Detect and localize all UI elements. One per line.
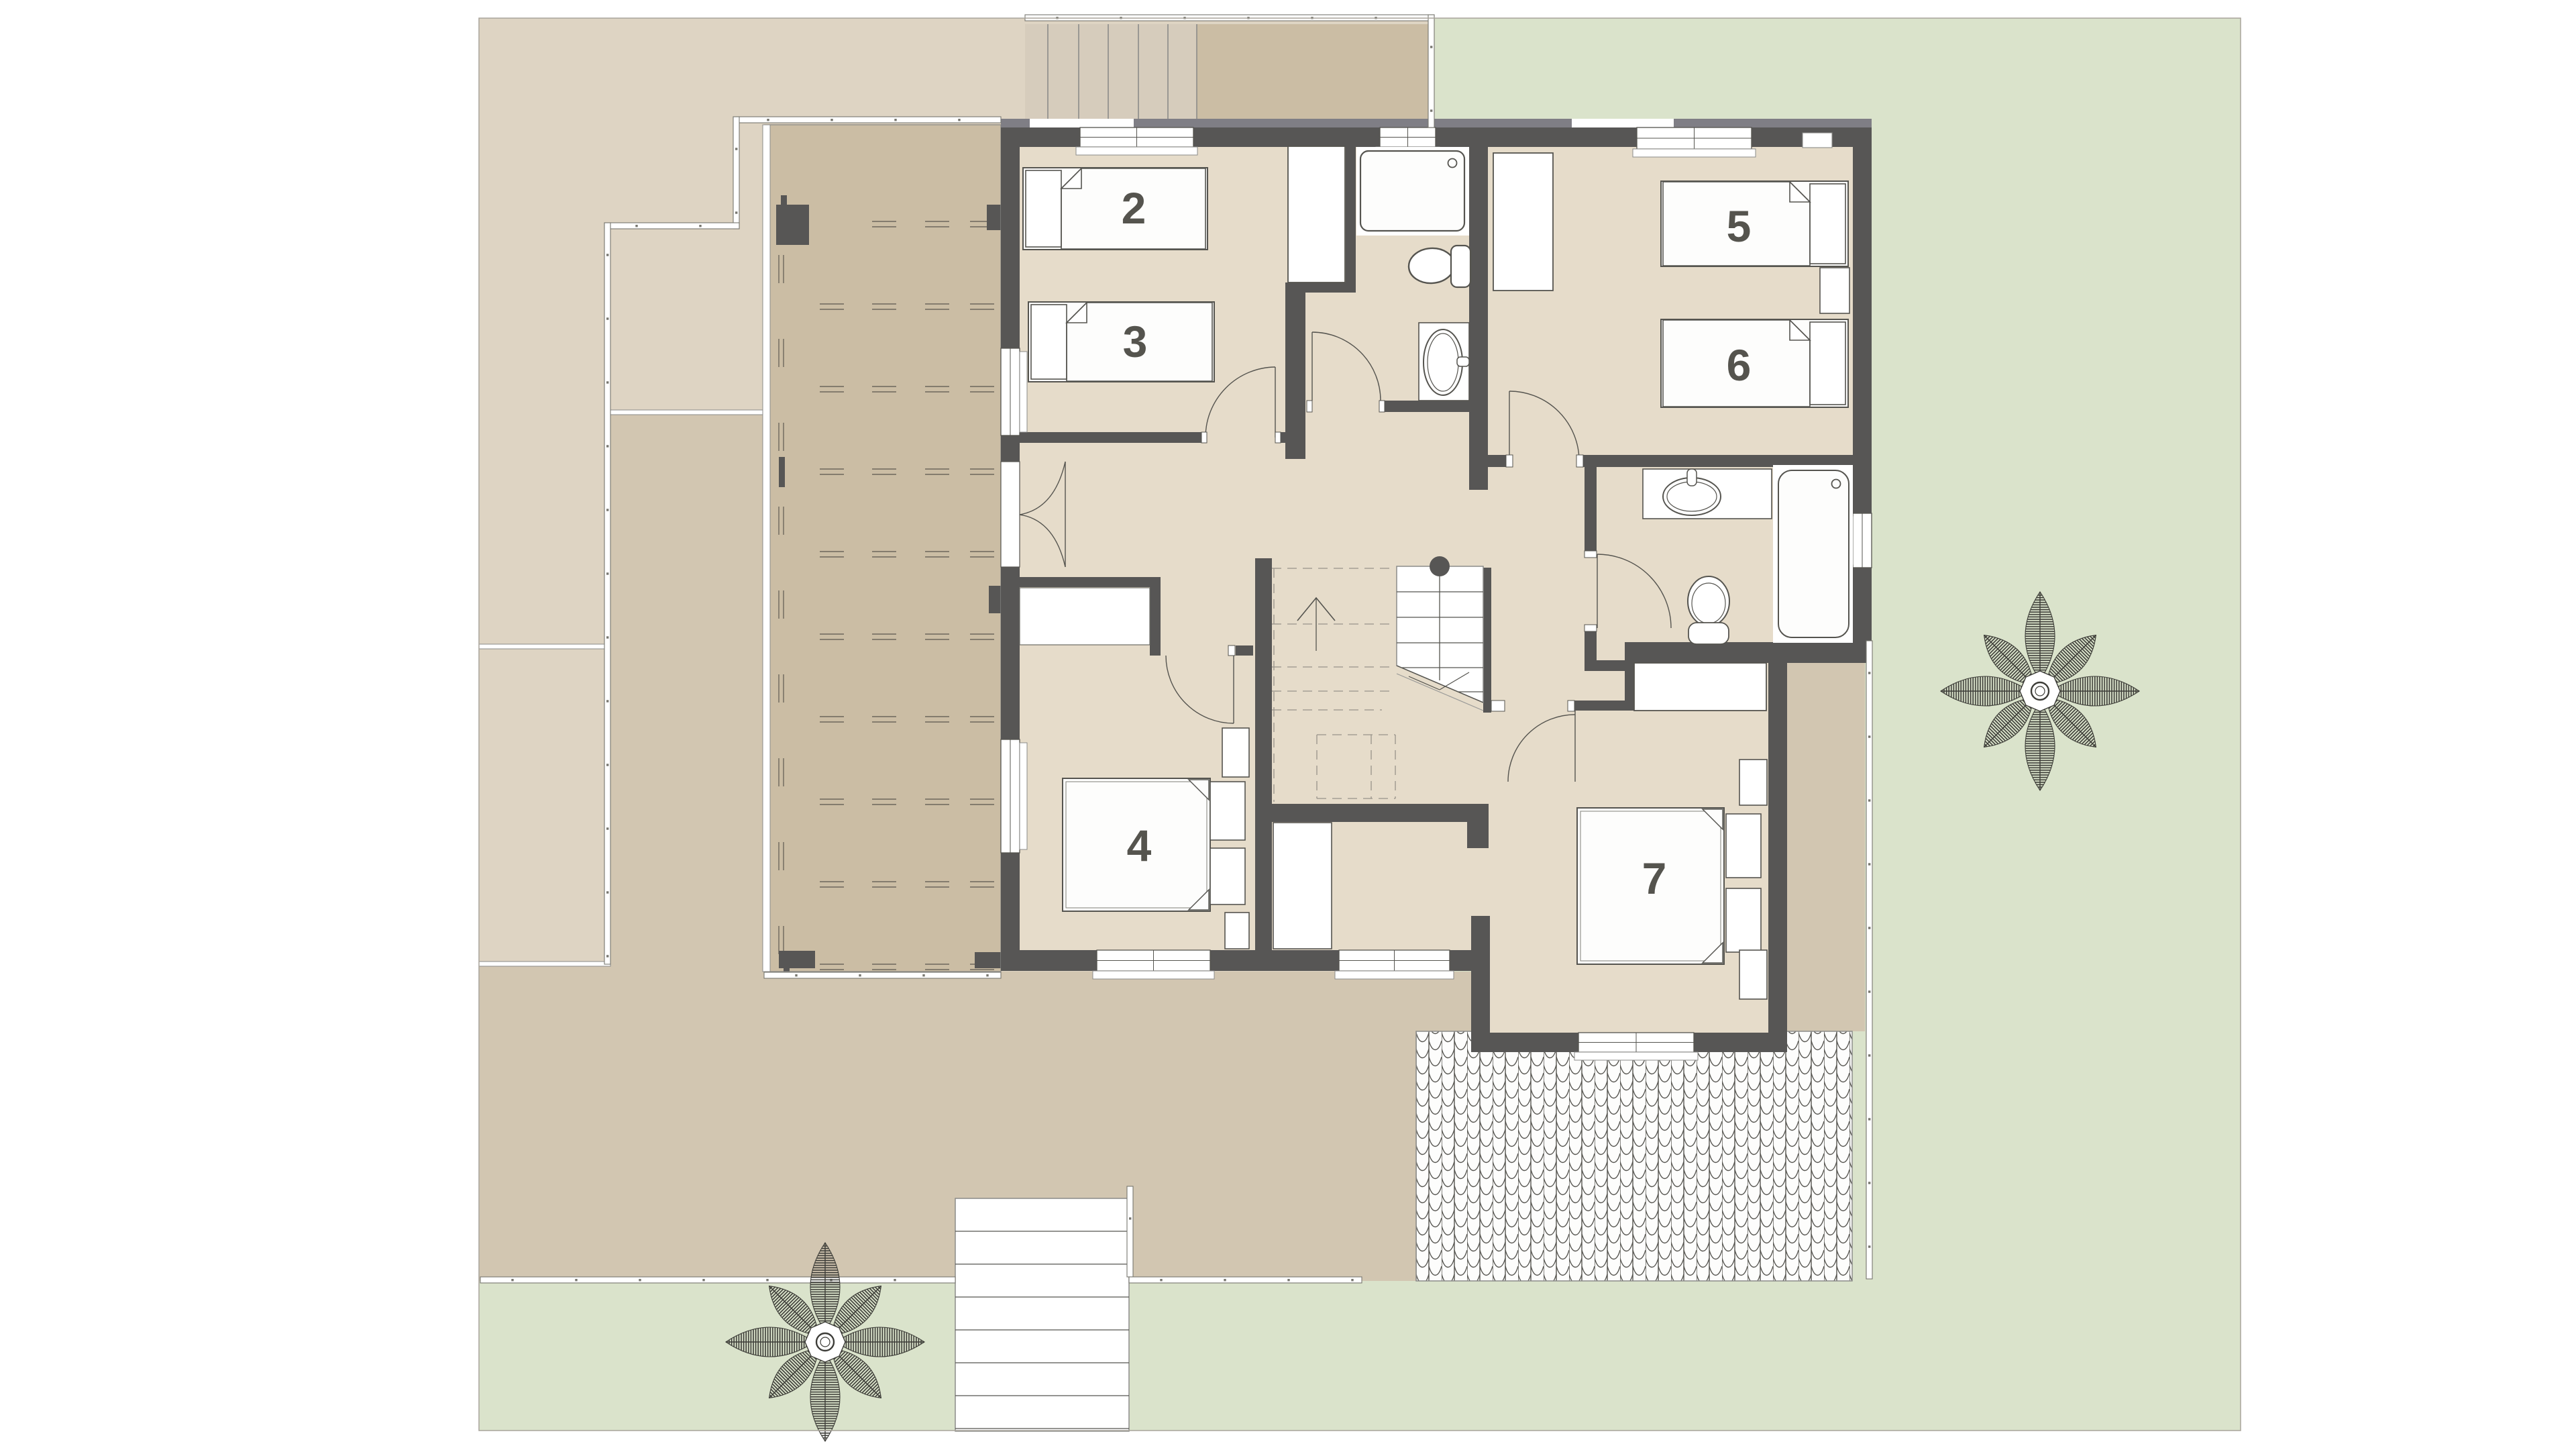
svg-text:3: 3 bbox=[1123, 317, 1148, 366]
svg-text:6: 6 bbox=[1727, 340, 1752, 390]
svg-text:2: 2 bbox=[1122, 183, 1146, 233]
svg-text:5: 5 bbox=[1727, 201, 1752, 251]
svg-text:7: 7 bbox=[1642, 853, 1667, 903]
svg-text:4: 4 bbox=[1127, 821, 1152, 870]
